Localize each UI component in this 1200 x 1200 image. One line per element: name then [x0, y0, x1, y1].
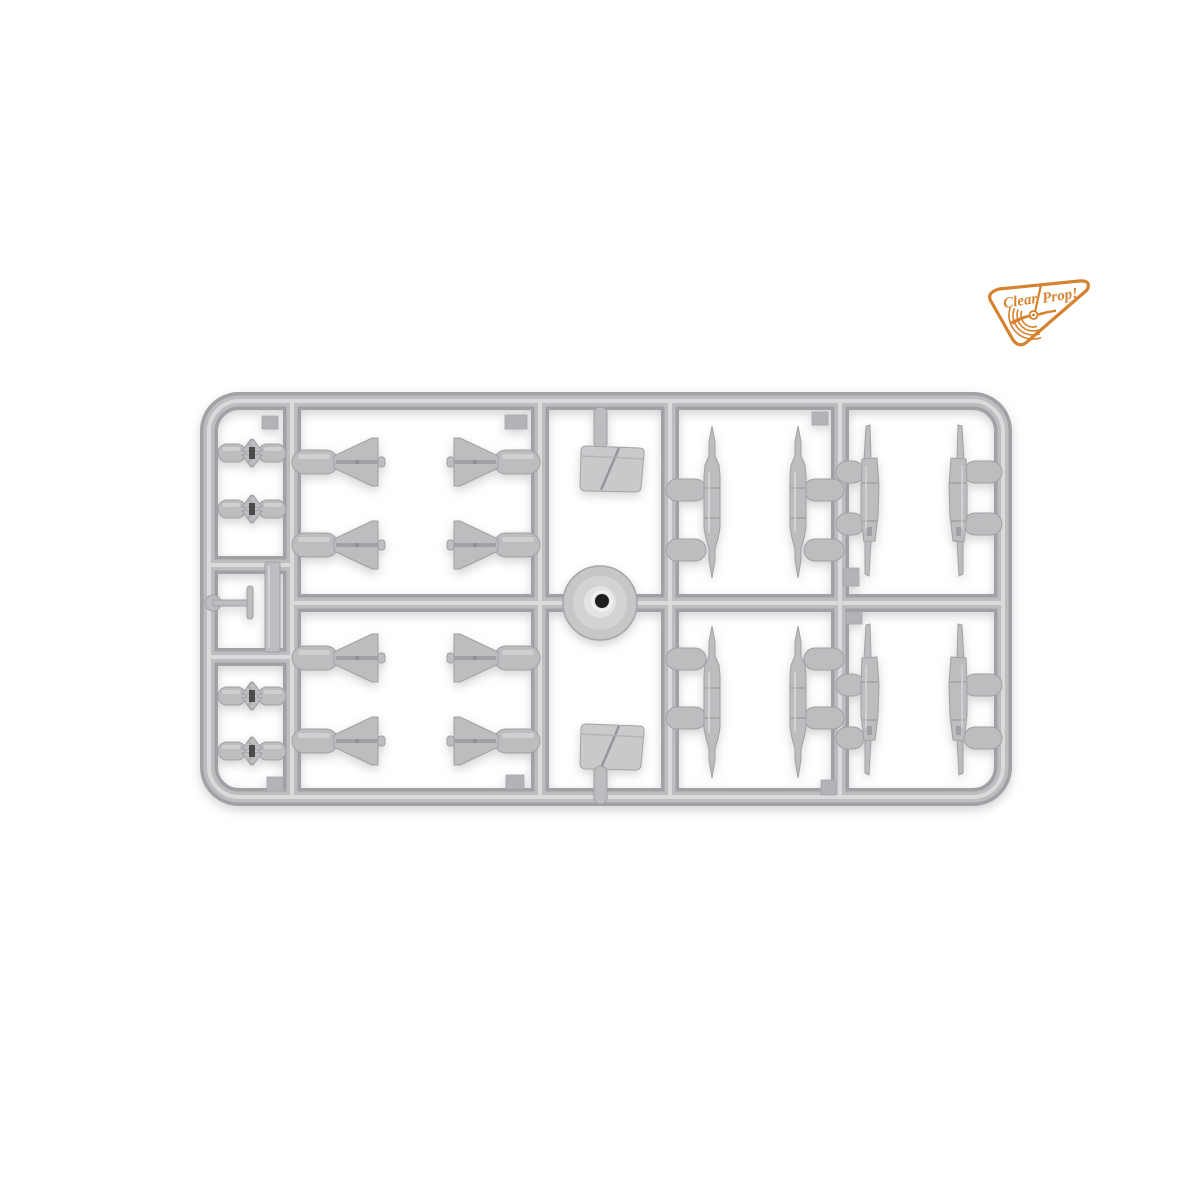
canopy-part: [580, 724, 644, 770]
small-bomb-pair: [218, 682, 286, 710]
tank-half-part: [861, 425, 879, 576]
tank-half-part: [949, 624, 967, 775]
product-photo: Clear Prop!: [0, 0, 1200, 1200]
brand-logo: Clear Prop!: [983, 260, 1115, 372]
delta-fin-bomb-part: [447, 634, 540, 682]
delta-fin-bomb-part: [447, 438, 540, 486]
tank-half-part: [949, 425, 967, 576]
flat-strip-part: [265, 562, 280, 652]
drop-tank-part: [704, 426, 720, 578]
canopy-part: [580, 446, 644, 492]
drop-tank-part: [790, 426, 806, 578]
injection-hub: [563, 566, 637, 640]
sprue-photo: [0, 0, 1200, 1200]
small-bomb-pair: [218, 439, 286, 467]
delta-fin-bomb-part: [292, 634, 385, 682]
tank-half-part: [861, 624, 879, 775]
delta-fin-bomb-part: [447, 521, 540, 569]
delta-fin-bomb-part: [292, 521, 385, 569]
small-bomb-pair: [218, 737, 286, 765]
small-bomb-pair: [218, 495, 286, 523]
drop-tank-part: [704, 626, 720, 778]
drop-tank-part: [790, 626, 806, 778]
delta-fin-bomb-part: [292, 438, 385, 486]
delta-fin-bomb-part: [292, 717, 385, 765]
delta-fin-bomb-part: [447, 717, 540, 765]
